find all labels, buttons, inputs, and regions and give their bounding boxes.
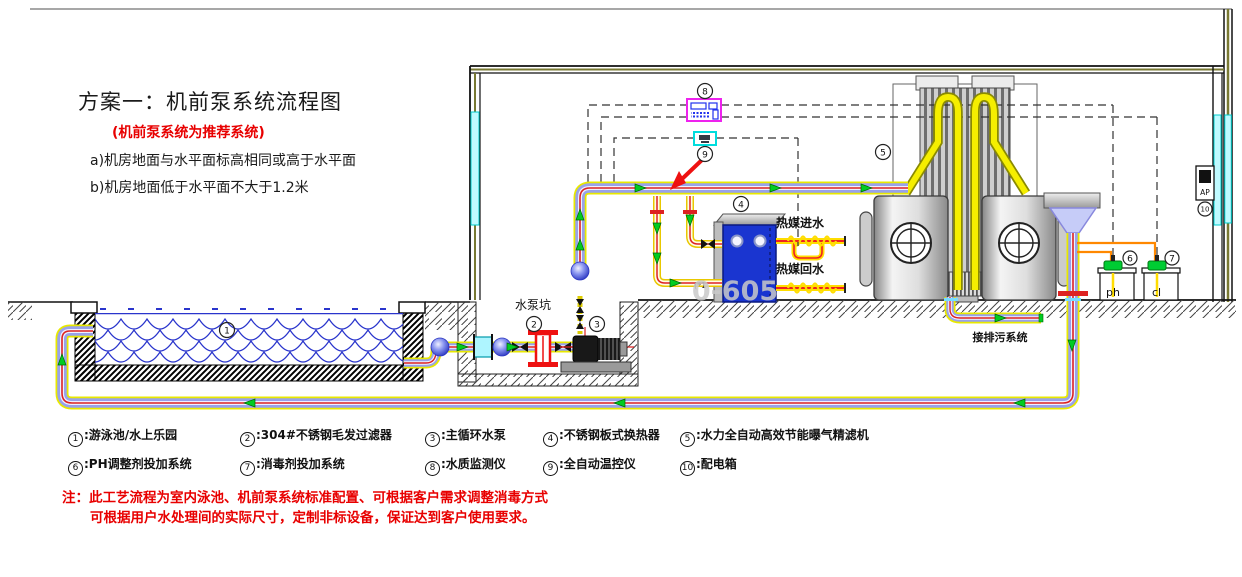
legend-num-6: 6 <box>68 461 83 476</box>
wall-sleeve <box>474 337 492 357</box>
funnel-shelf <box>1044 193 1100 208</box>
mark-controller: 9 <box>698 147 713 162</box>
dosing-line-ph <box>1077 252 1111 262</box>
pump-base <box>561 362 631 372</box>
svg-text:1: 1 <box>224 327 230 337</box>
check-valve-riser <box>576 296 584 334</box>
legend-item-9: 9:全自动温控仪 <box>543 455 636 476</box>
legend-item-10: 10:配电箱 <box>680 455 737 476</box>
condition-b: b)机房地面低于水平面不大于1.2米 <box>90 177 309 197</box>
svg-text:4: 4 <box>738 201 744 211</box>
pump-pit-label: 水泵坑 <box>515 297 551 312</box>
cl-tank-label: cl <box>1152 286 1161 299</box>
legend-item-8: 8:水质监测仪 <box>425 455 506 476</box>
legend-item-4: 4:不锈钢板式换热器 <box>543 426 660 447</box>
svg-text:8: 8 <box>702 88 708 98</box>
window-right-wall <box>1214 115 1221 225</box>
mark-distribution-box: 10 <box>1198 202 1212 216</box>
water-quality-monitor <box>687 99 721 121</box>
ph-dosing-pump <box>1104 261 1122 270</box>
note-line-2: 可根据用户水处理间的实际尺寸，定制非标设备，保证达到客户使用要求。 <box>90 506 536 526</box>
temperature-controller <box>694 132 716 145</box>
legend-item-7: 7:消毒剂投加系统 <box>240 455 345 476</box>
pit-floor <box>458 374 638 386</box>
condition-a: a)机房地面与水平面标高相同或高于水平面 <box>90 150 356 170</box>
legend-num-8: 8 <box>425 461 440 476</box>
porthole-left <box>891 223 931 263</box>
funnel <box>1050 208 1096 233</box>
distribution-box: AP <box>1196 166 1214 200</box>
mark-pool: 1 <box>220 323 235 338</box>
mark-heat-exchanger: 4 <box>734 197 749 212</box>
pool-floor <box>75 365 423 381</box>
legend-item-6: 6:PH调整剂投加系统 <box>68 455 192 476</box>
legend-num-9: 9 <box>543 461 558 476</box>
pipe-union-ball-1 <box>431 338 449 356</box>
process-flow-diagram-page: AP <box>0 0 1242 577</box>
tank-bracket-left <box>860 212 872 286</box>
pool-water <box>82 314 433 363</box>
legend-num-4: 4 <box>543 432 558 447</box>
ap-label: AP <box>1200 188 1210 197</box>
mark-filter: 5 <box>876 145 891 160</box>
note-line-1: 注：此工艺流程为室内泳池、机前泵系统标准配置、可根据客户需求调整消毒方式 <box>62 486 548 506</box>
mark-cl-dosing: 7 <box>1165 251 1179 265</box>
mark-pump: 3 <box>590 317 605 332</box>
legend-num-1: 1 <box>68 432 83 447</box>
cl-dosing-pump <box>1148 261 1166 270</box>
svg-text:9: 9 <box>702 151 708 161</box>
watermark: 0-605 <box>692 276 778 307</box>
legend-num-3: 3 <box>425 432 440 447</box>
svg-text:5: 5 <box>880 149 886 159</box>
legend-item-5: 5:水力全自动高效节能曝气精滤机 <box>680 426 869 447</box>
legend-item-3: 3:主循环水泵 <box>425 426 506 447</box>
mark-ph-dosing: 6 <box>1123 251 1137 265</box>
legend-num-7: 7 <box>240 461 255 476</box>
return-pipe-flange <box>1058 291 1088 296</box>
page-title: 方案一：机前泵系统流程图 <box>78 86 342 116</box>
svg-text:2: 2 <box>531 321 537 331</box>
svg-text:10: 10 <box>1201 206 1210 214</box>
porthole-right <box>999 223 1039 263</box>
svg-text:6: 6 <box>1127 255 1133 265</box>
ph-tank-label: ph <box>1106 286 1120 299</box>
svg-text:3: 3 <box>594 321 600 331</box>
legend-num-2: 2 <box>240 432 255 447</box>
hot-in-label: 热媒进水 <box>776 215 825 230</box>
mark-monitor: 8 <box>698 84 713 99</box>
legend-num-5: 5 <box>680 432 695 447</box>
legend-item-1: 1:游泳池/水上乐园 <box>68 426 177 447</box>
window-right-outer <box>1225 115 1232 223</box>
svg-text:7: 7 <box>1169 255 1175 265</box>
pipe-union-ball-3 <box>571 262 589 280</box>
hot-out-label: 热媒回水 <box>776 261 825 276</box>
legend-num-10: 10 <box>680 461 695 476</box>
mark-strainer: 2 <box>527 317 542 332</box>
drain-label: 接排污系统 <box>973 330 1028 344</box>
page-subtitle: (机前泵系统为推荐系统) <box>112 122 265 142</box>
window-left-wall <box>471 112 479 225</box>
legend-item-2: 2:304#不锈钢毛发过滤器 <box>240 426 392 447</box>
